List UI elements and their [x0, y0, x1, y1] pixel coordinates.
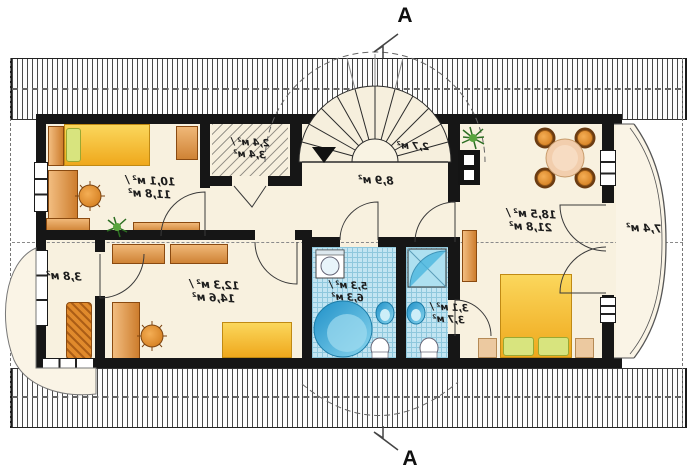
door-living-room	[415, 202, 455, 242]
room-label-living-room: 18,5 м² /21,8 м²	[505, 207, 556, 235]
room-label-bathroom-large: 5,3 м² /6,3 м²	[328, 280, 368, 305]
plan-drawing-overlay	[0, 0, 700, 476]
plant-icon	[462, 127, 484, 149]
office-chair	[75, 181, 105, 211]
bidet	[376, 302, 394, 324]
spiral-staircase	[265, 52, 485, 163]
opening-wardrobe-closet	[234, 186, 266, 207]
door-bathroom-large	[340, 202, 378, 240]
room-label-balcony-right: 7,4 м²	[626, 222, 662, 236]
corner-shower	[408, 249, 446, 287]
room-label-storage-left: 3,8 м²	[46, 270, 82, 284]
toilet	[371, 338, 389, 358]
section-marker-bottom: A	[402, 447, 417, 471]
room-label-wardrobe-closet: 2,4 м² /3,4 м²	[230, 137, 270, 162]
balcony-right-outline	[614, 124, 666, 358]
room-label-bedroom-top-left: 10,1 м² /11,8 м²	[124, 174, 175, 202]
door-storage-left	[100, 254, 144, 298]
section-marker-top: A	[397, 4, 412, 28]
toilet	[420, 338, 438, 358]
room-label-staircase: 2,7 м²	[397, 140, 430, 153]
room-label-hall: 8,9 м²	[358, 174, 394, 188]
dining-table-set	[536, 129, 594, 187]
plant-icon	[107, 217, 127, 237]
balcony-double-door	[560, 205, 606, 293]
office-chair	[137, 321, 167, 351]
floor-plan-sheet: 10,1 м² /11,8 м² 2,4 м² /3,4 м² 2,7 м² 8…	[0, 0, 700, 476]
room-label-study-bedroom: 12,3 м² /14,6 м²	[188, 278, 239, 306]
dormer-dash-arc	[302, 382, 458, 416]
bathroom-fixtures	[314, 249, 446, 358]
room-label-bathroom-small: 3,1 м² /3,7 м²	[429, 302, 469, 327]
sink	[407, 302, 425, 324]
washing-machine	[316, 250, 344, 278]
corner-bathtub	[314, 301, 372, 357]
door-study-bedroom	[255, 242, 297, 284]
